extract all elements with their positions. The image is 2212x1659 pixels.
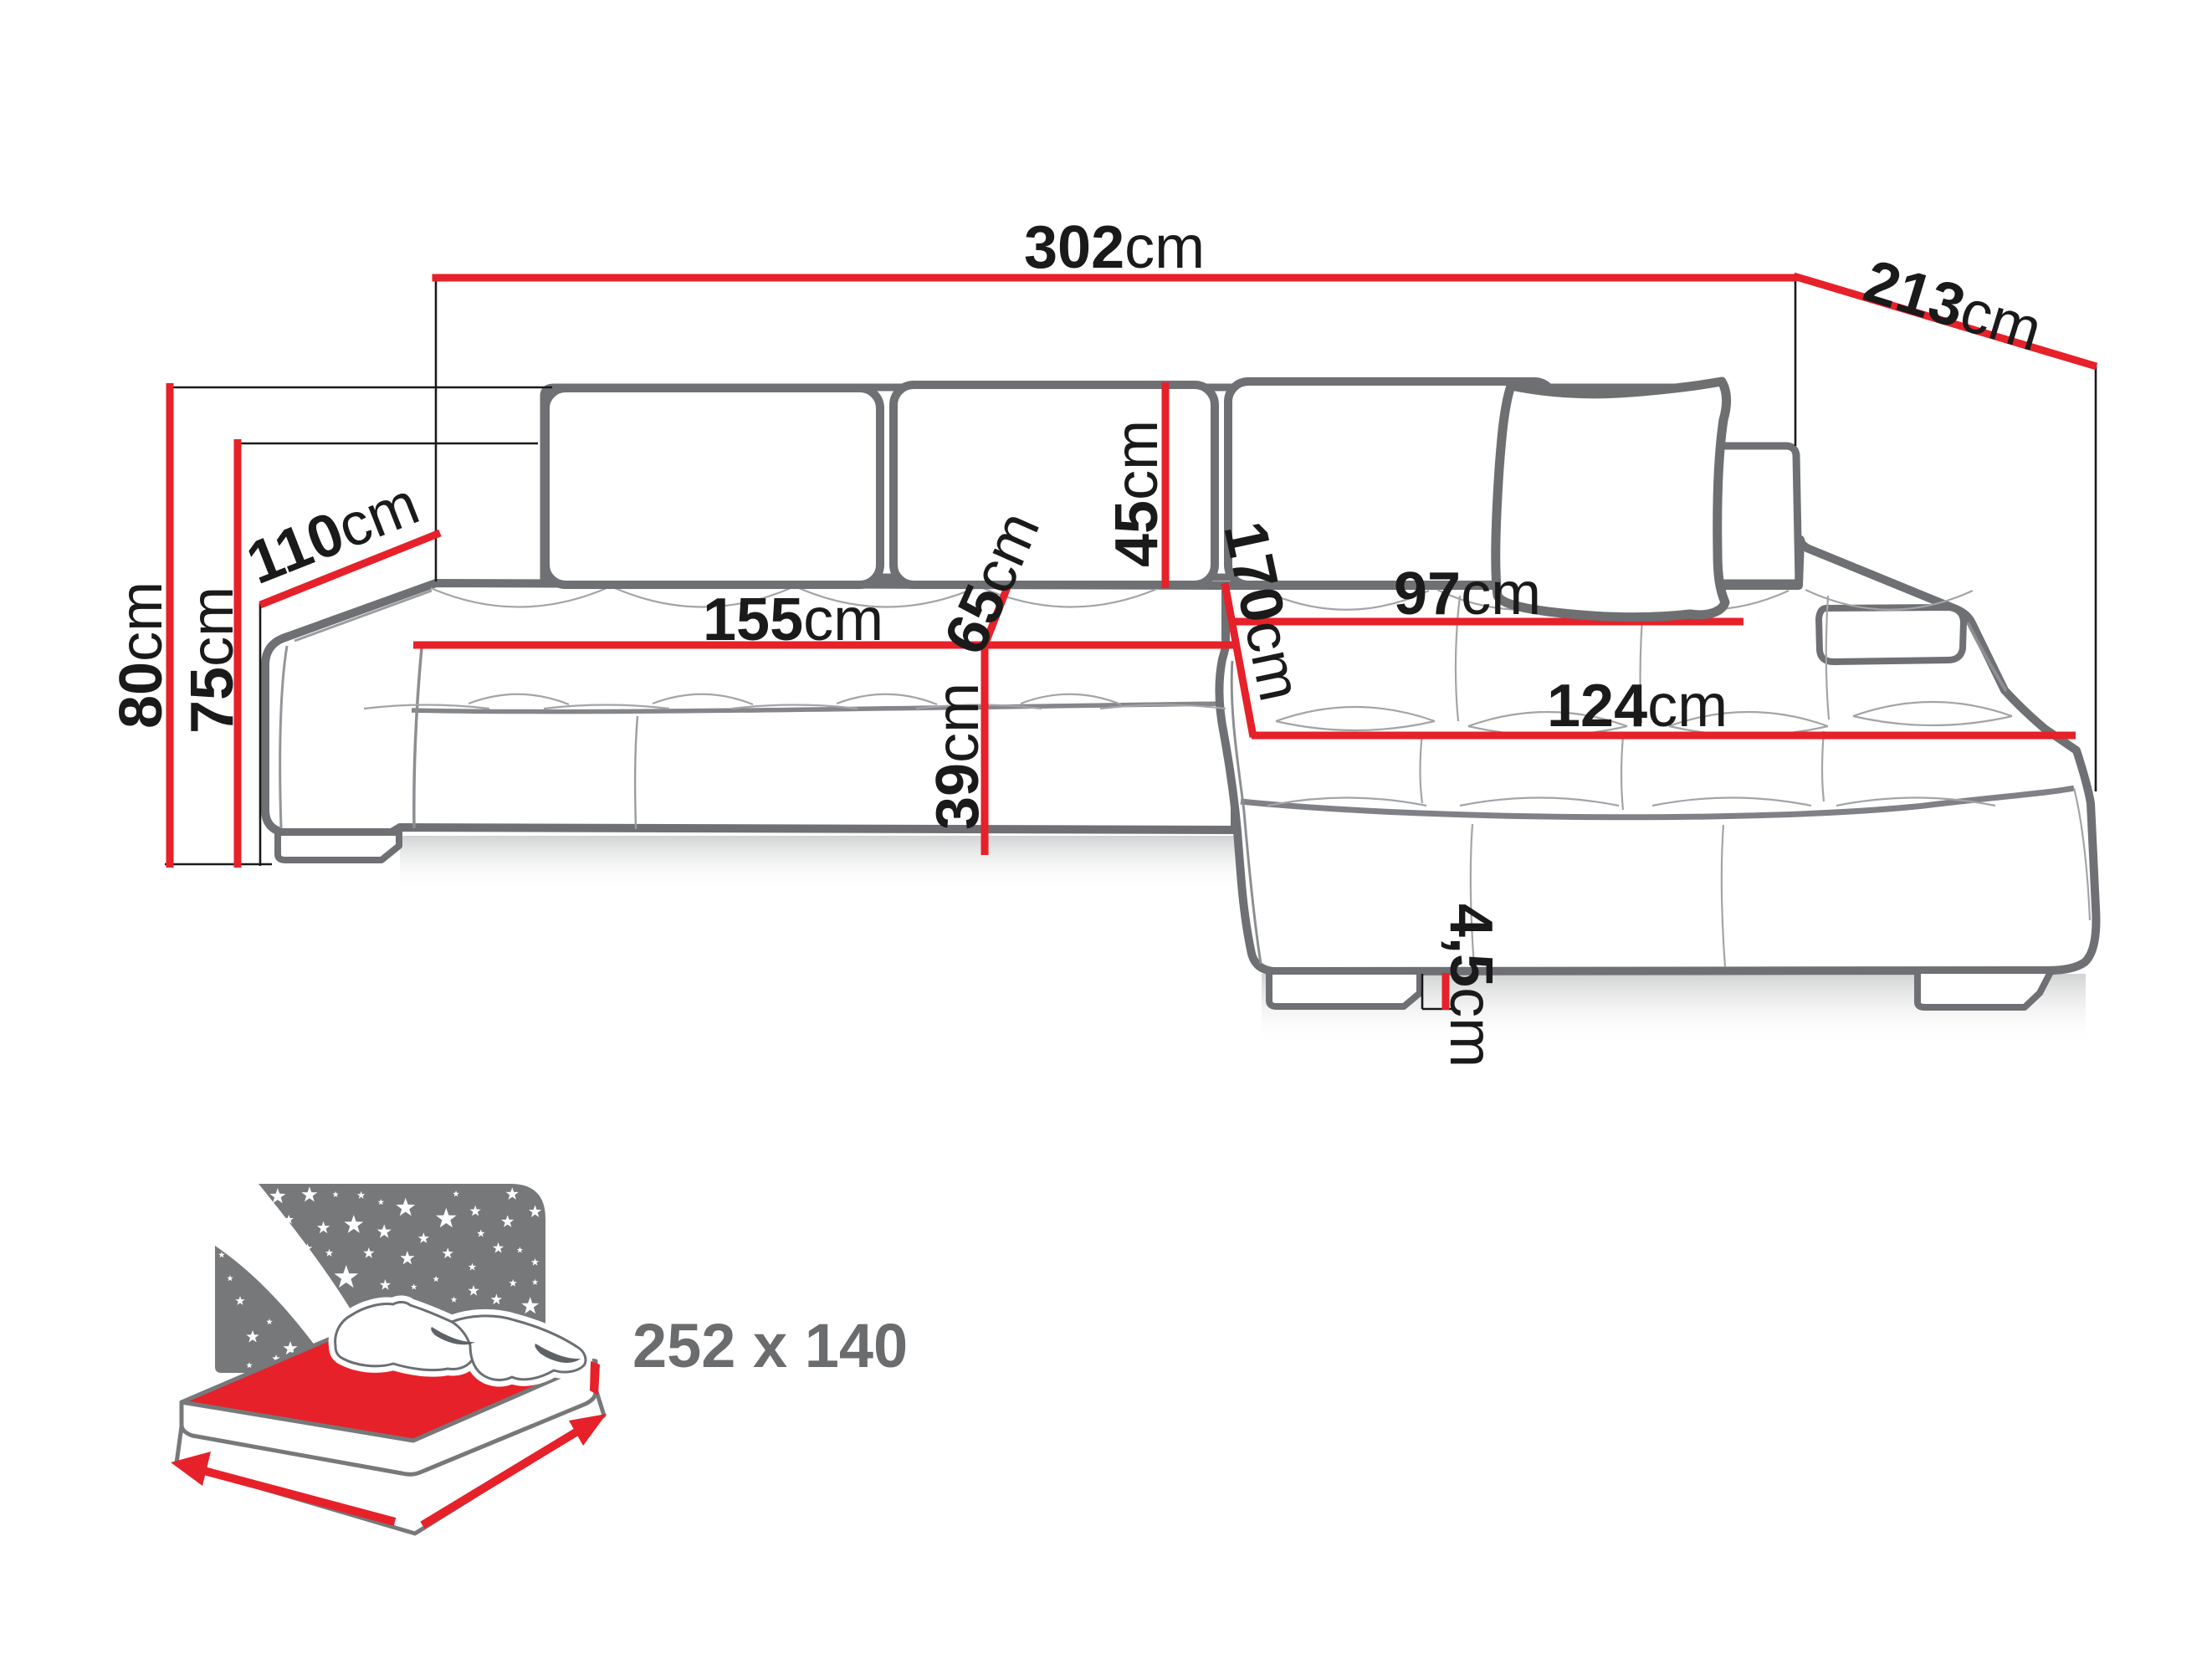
svg-text:97cm: 97cm [1394, 561, 1541, 627]
svg-text:302cm: 302cm [1024, 214, 1205, 281]
svg-text:45cm: 45cm [1103, 420, 1170, 567]
svg-text:252 x 140: 252 x 140 [632, 1311, 908, 1380]
svg-text:75cm: 75cm [179, 586, 246, 734]
svg-text:4,5cm: 4,5cm [1437, 904, 1504, 1068]
svg-text:155cm: 155cm [703, 586, 883, 653]
svg-text:124cm: 124cm [1547, 673, 1728, 740]
svg-text:80cm: 80cm [108, 581, 175, 729]
svg-text:39cm: 39cm [924, 683, 991, 830]
